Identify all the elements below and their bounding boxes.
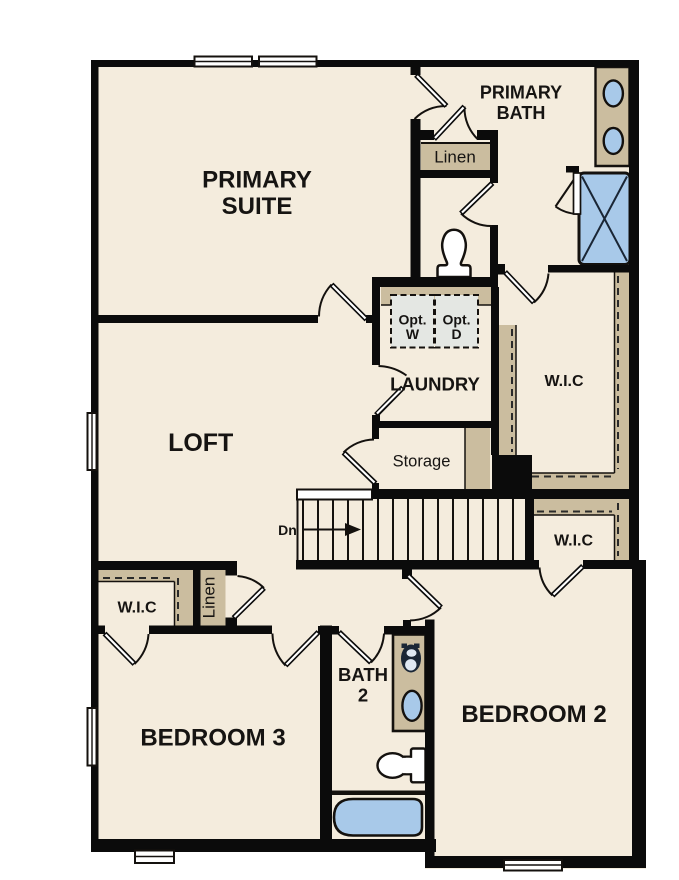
svg-text:SUITE: SUITE	[222, 193, 293, 220]
svg-text:Dn: Dn	[278, 522, 297, 538]
svg-text:W.I.C: W.I.C	[117, 600, 157, 617]
svg-text:Storage: Storage	[393, 453, 451, 471]
svg-text:W: W	[406, 326, 420, 342]
svg-text:LAUNDRY: LAUNDRY	[390, 374, 480, 395]
svg-text:BEDROOM 3: BEDROOM 3	[140, 725, 285, 752]
svg-text:2: 2	[358, 685, 368, 706]
svg-text:W.I.C: W.I.C	[544, 373, 584, 390]
svg-text:Linen: Linen	[434, 148, 476, 167]
svg-text:LOFT: LOFT	[168, 429, 233, 457]
svg-text:W.I.C: W.I.C	[554, 533, 594, 550]
svg-text:BEDROOM 2: BEDROOM 2	[461, 701, 606, 728]
svg-text:PRIMARY: PRIMARY	[202, 167, 312, 194]
svg-text:BATH: BATH	[338, 664, 388, 685]
svg-text:BATH: BATH	[497, 103, 546, 123]
svg-text:PRIMARY: PRIMARY	[480, 83, 562, 103]
svg-text:D: D	[451, 326, 461, 342]
svg-text:Linen: Linen	[200, 577, 219, 619]
